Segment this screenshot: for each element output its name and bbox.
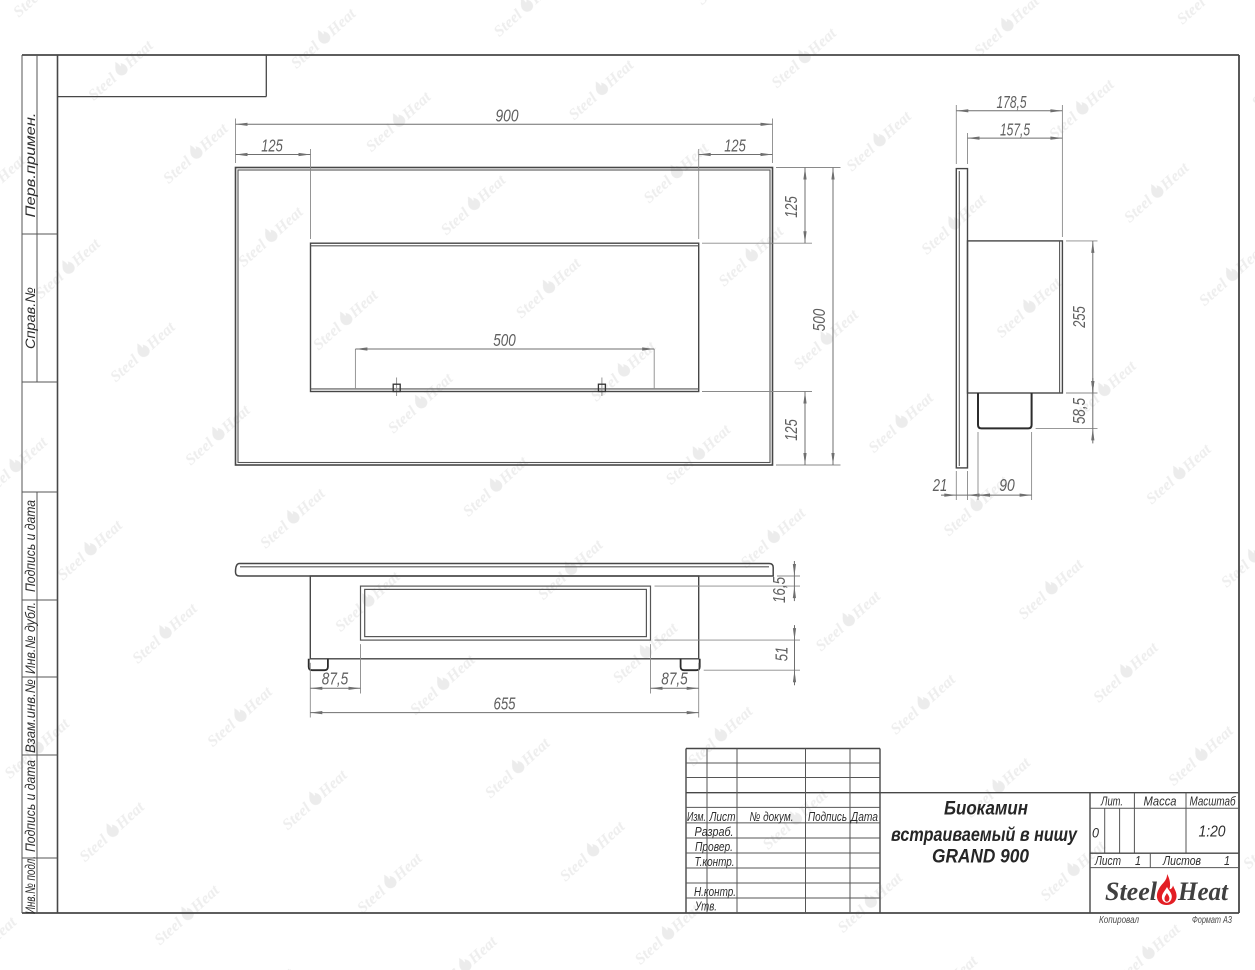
svg-text:Н.контр.: Н.контр. — [694, 884, 736, 899]
svg-text:Утв.: Утв. — [694, 899, 717, 914]
svg-text:500: 500 — [809, 309, 829, 332]
svg-text:Взам.инв.№: Взам.инв.№ — [22, 679, 38, 753]
svg-text:51: 51 — [772, 647, 792, 662]
svg-text:Лит.: Лит. — [1100, 794, 1123, 809]
svg-text:87,5: 87,5 — [661, 669, 688, 689]
svg-text:Подпись: Подпись — [808, 809, 847, 824]
svg-text:87,5: 87,5 — [322, 669, 349, 689]
svg-text:157,5: 157,5 — [1000, 119, 1030, 139]
svg-text:125: 125 — [781, 419, 801, 441]
svg-text:GRAND 900: GRAND 900 — [932, 846, 1029, 868]
svg-text:Биокамин: Биокамин — [944, 799, 1028, 820]
svg-text:21: 21 — [932, 475, 947, 495]
svg-text:Провер.: Провер. — [695, 839, 733, 854]
svg-text:Справ.№: Справ.№ — [22, 287, 38, 349]
svg-text:Лист: Лист — [709, 809, 736, 824]
svg-text:Масса: Масса — [1144, 794, 1177, 809]
svg-text:Подпись и дата: Подпись и дата — [22, 500, 38, 592]
svg-text:Подпись и дата: Подпись и дата — [22, 760, 38, 852]
svg-text:Инв.№ подл.: Инв.№ подл. — [22, 856, 38, 914]
svg-text:178,5: 178,5 — [997, 92, 1027, 112]
svg-text:Листов: Листов — [1162, 853, 1201, 868]
svg-text:125: 125 — [781, 196, 801, 218]
svg-text:1: 1 — [1224, 853, 1230, 868]
svg-text:Heat: Heat — [1177, 877, 1229, 906]
svg-text:0: 0 — [1092, 825, 1099, 841]
svg-text:16,5: 16,5 — [769, 577, 789, 603]
svg-text:Копировал: Копировал — [1099, 915, 1139, 926]
svg-text:Формат А3: Формат А3 — [1192, 915, 1232, 926]
svg-text:Разраб.: Разраб. — [695, 824, 734, 839]
svg-text:Т.контр.: Т.контр. — [695, 854, 735, 869]
svg-text:Инв.№ дубл.: Инв.№ дубл. — [22, 602, 38, 674]
svg-text:1:20: 1:20 — [1199, 824, 1226, 841]
svg-text:Steel: Steel — [1105, 877, 1158, 906]
svg-text:встраиваемый в нишу: встраиваемый в нишу — [891, 825, 1078, 846]
svg-text:500: 500 — [493, 330, 516, 350]
svg-text:Дата: Дата — [849, 809, 878, 824]
svg-text:Лист: Лист — [1094, 853, 1121, 868]
svg-text:1: 1 — [1135, 853, 1141, 868]
svg-text:125: 125 — [724, 136, 746, 156]
svg-text:125: 125 — [261, 136, 283, 156]
svg-text:№ докум.: № докум. — [750, 809, 794, 824]
svg-text:Изм.: Изм. — [687, 809, 706, 824]
svg-text:255: 255 — [1069, 306, 1089, 328]
svg-text:Перв.примен.: Перв.примен. — [22, 113, 38, 218]
svg-text:900: 900 — [496, 105, 519, 125]
svg-text:90: 90 — [999, 475, 1015, 495]
svg-text:Масштаб: Масштаб — [1190, 794, 1237, 809]
svg-text:655: 655 — [494, 694, 516, 714]
svg-text:58,5: 58,5 — [1069, 398, 1089, 424]
